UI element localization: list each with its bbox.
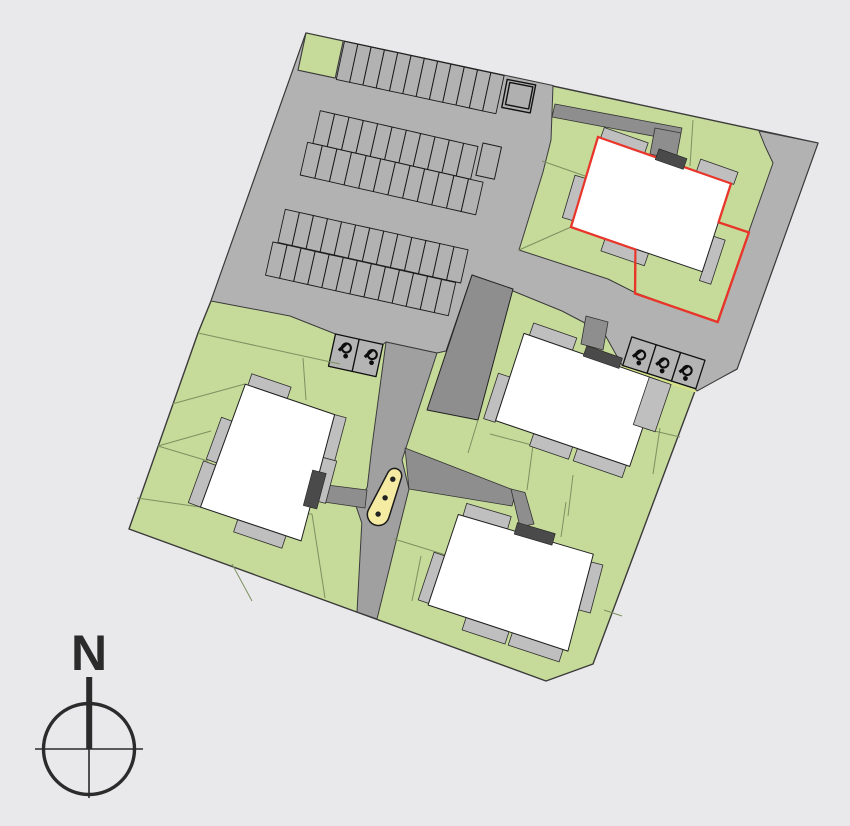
svg-text:N: N (71, 625, 107, 681)
